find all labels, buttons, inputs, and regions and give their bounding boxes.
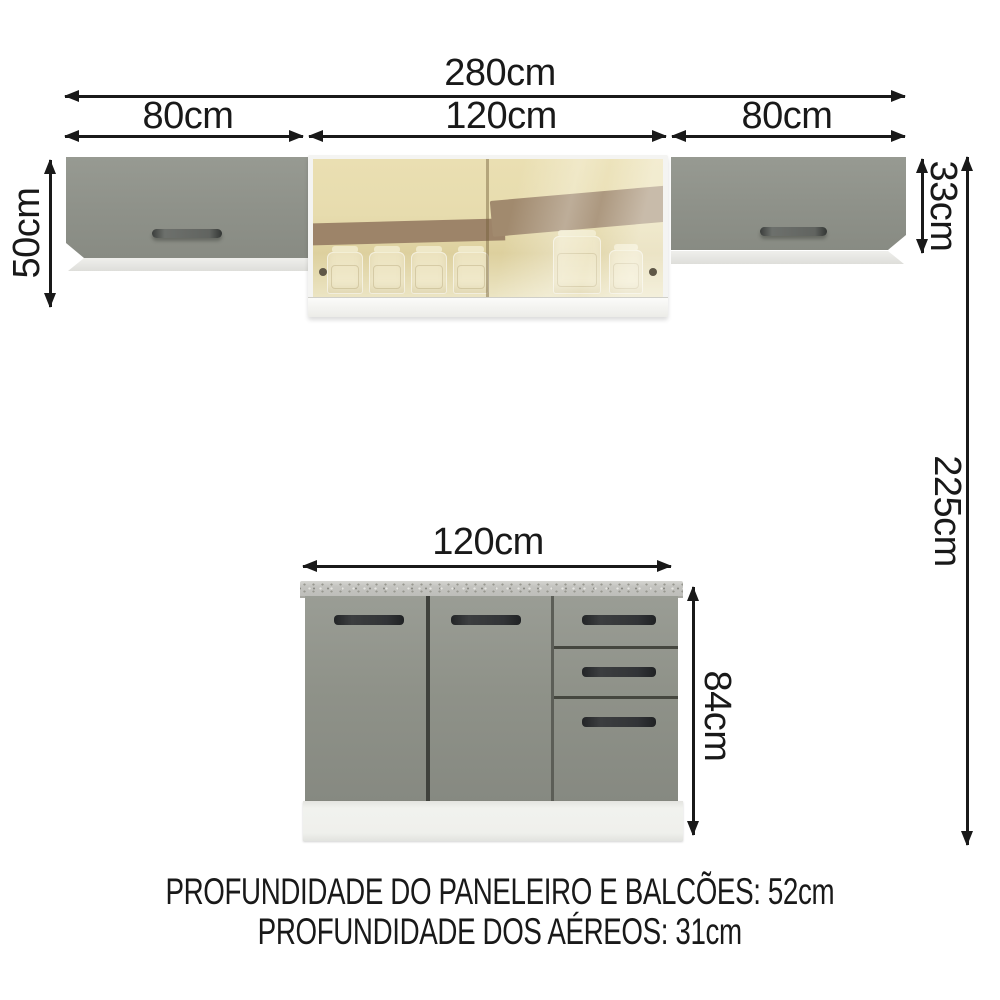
right-cabinet-width-label: 80cm — [742, 97, 833, 135]
door-divider — [426, 596, 430, 802]
right-wall-cabinet-door — [671, 157, 906, 250]
left-cabinet-height-label: 50cm — [8, 188, 46, 279]
depth-note-wall-cabinets: PROFUNDIDADE DOS AÉREOS: 31cm — [0, 911, 1000, 953]
left-cabinet-width-arrow — [65, 135, 303, 138]
drawer-2-handle — [582, 667, 656, 677]
total-height-label: 225cm — [928, 455, 966, 567]
right-wall-cabinet-handle — [760, 227, 827, 236]
base-center-door-handle — [451, 615, 521, 625]
base-cabinet-width-arrow — [303, 565, 671, 568]
glass-door-right-knob — [649, 268, 657, 276]
left-cabinet-height-arrow — [49, 160, 52, 307]
countertop — [300, 581, 683, 596]
left-cabinet-width-label: 80cm — [143, 97, 234, 135]
kitchen-cabinet-dimensions-diagram: 280cm 80cm 120cm 80cm — [0, 0, 1000, 1000]
left-wall-cabinet-handle — [152, 229, 222, 238]
drawer-3-handle — [582, 717, 656, 727]
right-cabinet-height-label: 33cm — [924, 161, 962, 252]
depth-note-pantry-counters-text: PROFUNDIDADE DO PANELEIRO E BALCÕES: 52c… — [166, 871, 835, 913]
base-cabinet-height-arrow — [692, 587, 695, 835]
glass-cabinet-bottom-frame — [308, 297, 668, 317]
right-wall-cabinet-underside — [671, 251, 904, 264]
left-wall-cabinet-door — [66, 157, 310, 258]
depth-note-pantry-counters: PROFUNDIDADE DO PANELEIRO E BALCÕES: 52c… — [0, 871, 1000, 913]
drawer-separator — [554, 696, 678, 699]
base-left-door-handle — [334, 615, 404, 625]
left-wall-cabinet — [66, 157, 310, 271]
depth-note-wall-cabinets-text: PROFUNDIDADE DOS AÉREOS: 31cm — [258, 911, 742, 953]
base-cabinet-width-label: 120cm — [432, 523, 544, 561]
center-glass-cabinet — [308, 155, 668, 317]
glass-doors — [313, 159, 663, 298]
base-cabinet-plinth — [303, 801, 683, 841]
right-wall-cabinet — [671, 157, 906, 264]
right-cabinet-width-arrow — [672, 135, 905, 138]
drawer-1-handle — [582, 615, 656, 625]
total-width-label: 280cm — [444, 54, 556, 92]
base-cabinet-body — [305, 596, 678, 802]
drawer-section-divider — [551, 596, 554, 802]
left-wall-cabinet-underside — [68, 258, 310, 271]
center-cabinet-width-arrow — [309, 135, 666, 138]
center-cabinet-width-label: 120cm — [445, 97, 557, 135]
glass-door-divider — [486, 159, 489, 298]
base-cabinet-height-label: 84cm — [698, 671, 736, 762]
glass-door-left-knob — [319, 268, 327, 276]
drawer-separator — [554, 646, 678, 649]
